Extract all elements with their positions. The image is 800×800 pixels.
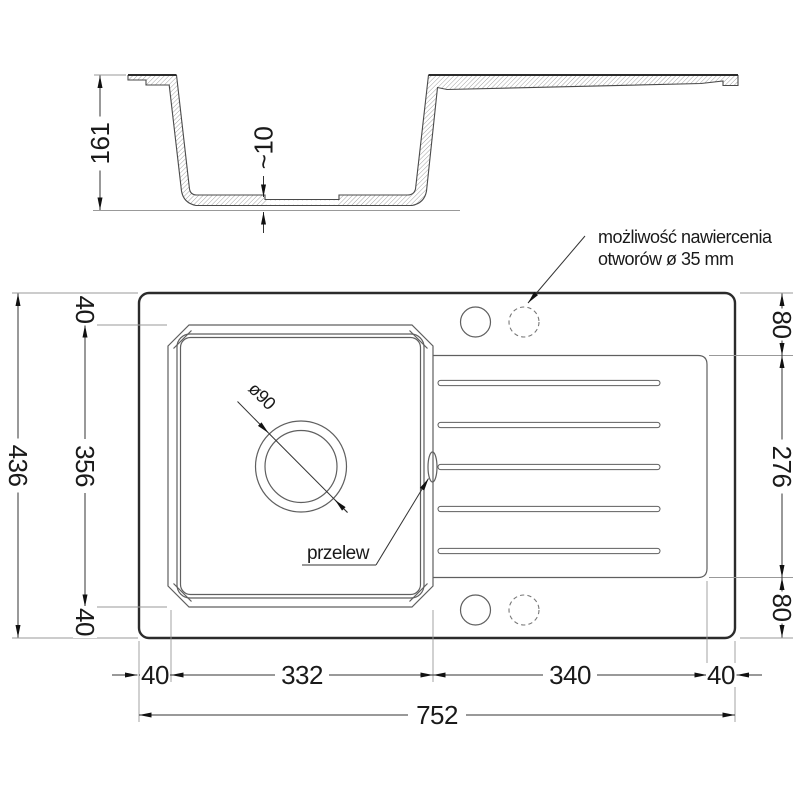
dim-bottom-drainer-width: 340 (549, 660, 591, 690)
dim-left-bowl-height: 356 (70, 445, 100, 487)
dim-left-total: 436 (3, 445, 33, 487)
drainboard-ridge (438, 464, 660, 469)
dim-thickness-value: ~10 (249, 127, 279, 170)
dim-thickness: ~10 (249, 120, 279, 176)
dim-right-drainer-height: 276 (767, 446, 797, 488)
dim-bottom-right-margin: 40 (707, 660, 735, 690)
drainboard-ridge (438, 380, 660, 385)
dim-depth: 161 (85, 117, 115, 171)
tap-holes-note: możliwość nawiercenia otworów ø 35 mm (528, 227, 773, 303)
dim-depth-value: 161 (85, 123, 115, 165)
section-bowl-cavity-outline (177, 75, 429, 200)
drainboard-ridge (438, 548, 660, 553)
drawing-svg: 161 ~10 (0, 0, 800, 800)
overflow-label: przelew (307, 543, 370, 564)
dim-left-bottom-margin: 40 (70, 608, 100, 636)
dim-bottom-total: 752 (416, 700, 458, 730)
dim-bottom-bowl-width: 332 (281, 660, 323, 690)
tap-holes-note-line1: możliwość nawiercenia (598, 227, 773, 247)
dim-left-top-margin: 40 (70, 296, 100, 324)
section-view: 161 ~10 (85, 75, 738, 233)
dim-bottom-left-margin: 40 (141, 660, 169, 690)
section-drain-membrane (266, 200, 338, 204)
drainboard-ridge (438, 422, 660, 427)
sink-technical-drawing: 161 ~10 (0, 0, 800, 800)
drainboard-ridge (438, 506, 660, 511)
section-body-hatch (128, 75, 738, 206)
dim-right-top-margin: 80 (767, 311, 797, 339)
tap-holes-note-line2: otworów ø 35 mm (598, 249, 734, 269)
plan-view: ø90 przelew możliwość nawiercenia otworó… (139, 227, 773, 638)
dim-right-bottom-margin: 80 (767, 594, 797, 622)
